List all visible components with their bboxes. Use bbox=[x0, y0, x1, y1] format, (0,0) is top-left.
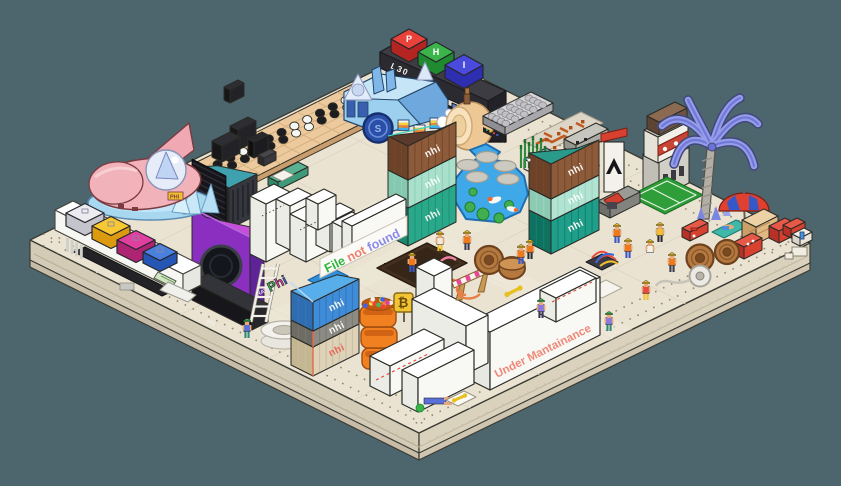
svg-text:H: H bbox=[433, 47, 440, 57]
svg-text:P: P bbox=[406, 34, 412, 44]
svg-text:S: S bbox=[375, 124, 382, 135]
svg-text:₿: ₿ bbox=[398, 295, 409, 310]
svg-text:I: I bbox=[463, 60, 466, 70]
svg-text:PHI: PHI bbox=[170, 195, 180, 201]
